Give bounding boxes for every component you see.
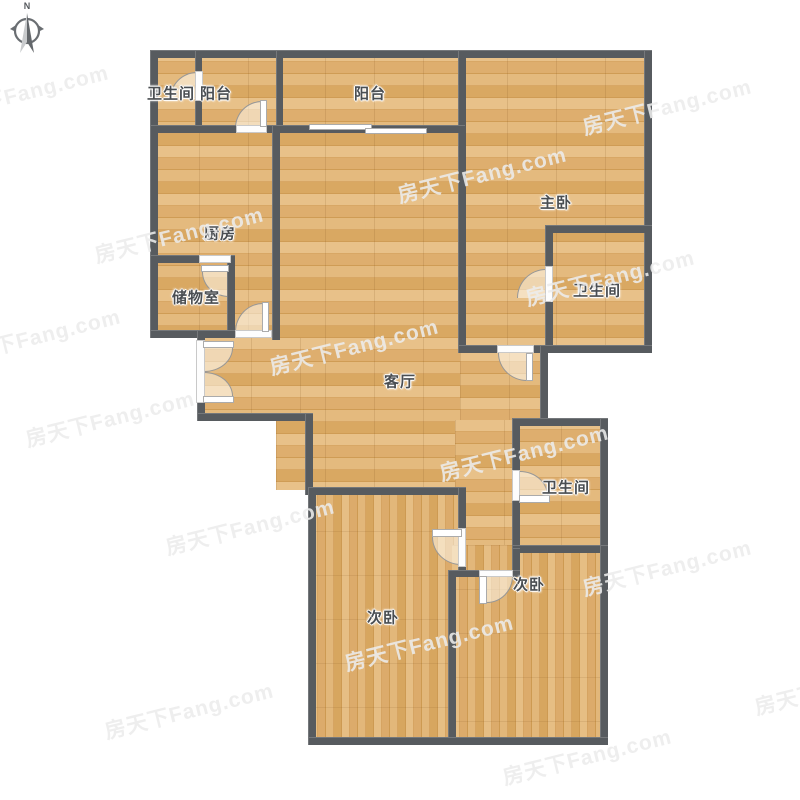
wall — [150, 50, 652, 58]
door-leaf — [479, 576, 487, 604]
wall — [600, 418, 608, 552]
sliding-door-panel — [365, 128, 427, 134]
room-label-kitchen: 厨房 — [204, 223, 236, 244]
room-label-living-room: 客厅 — [384, 371, 416, 392]
north-arrow-icon — [8, 11, 46, 57]
wall — [644, 50, 652, 353]
room-label-balcony-main: 阳台 — [354, 83, 386, 104]
door-leaf — [201, 265, 229, 272]
door-opening — [545, 266, 553, 302]
wall — [308, 737, 608, 745]
door-leaf — [526, 353, 533, 381]
room-label-master-bedroom: 主卧 — [540, 192, 572, 213]
door-leaf — [262, 302, 269, 332]
wall — [458, 345, 652, 353]
wall — [308, 487, 466, 495]
wall — [512, 545, 608, 553]
wall — [272, 125, 280, 340]
wall — [305, 413, 313, 495]
wall — [540, 345, 548, 425]
door-leaf — [432, 529, 462, 537]
door-opening — [497, 345, 534, 353]
door-leaf — [260, 100, 267, 127]
watermark: 房天下Fang.com — [0, 57, 112, 128]
wall — [458, 50, 466, 353]
room-label-master-bath: 卫生间 — [573, 280, 621, 301]
wall — [512, 418, 608, 426]
floorplan-canvas: 卫生间 阳台 阳台 主卧 厨房 卫生间 储物室 客厅 卫生间 次卧 次卧 N 房… — [0, 0, 800, 800]
wall — [600, 545, 608, 745]
wall — [197, 413, 313, 421]
door-opening — [196, 340, 205, 403]
watermark: 房天下Fang.com — [22, 383, 197, 454]
compass: N — [6, 1, 48, 59]
compass-north-label: N — [6, 1, 48, 11]
door-opening — [199, 255, 231, 263]
wall — [448, 570, 456, 745]
wall — [276, 50, 283, 125]
watermark: 房天下Fang.com — [101, 675, 276, 746]
sliding-door-panel — [309, 124, 372, 130]
room-label-bedroom-right: 次卧 — [513, 574, 545, 595]
room-label-balcony-small: 阳台 — [200, 83, 232, 104]
room-label-bath-mid: 卫生间 — [542, 477, 590, 498]
wall — [150, 330, 235, 338]
watermark: 房天下Fang.com — [0, 301, 124, 372]
wall — [545, 225, 652, 233]
wall — [308, 487, 316, 745]
door-leaf — [203, 396, 234, 403]
room-label-storage: 储物室 — [172, 287, 220, 308]
watermark: 房天下Fang.com — [751, 651, 800, 722]
room-label-bedroom-left: 次卧 — [367, 607, 399, 628]
room-label-bath-top-left: 卫生间 — [147, 83, 195, 104]
door-leaf — [203, 341, 234, 348]
